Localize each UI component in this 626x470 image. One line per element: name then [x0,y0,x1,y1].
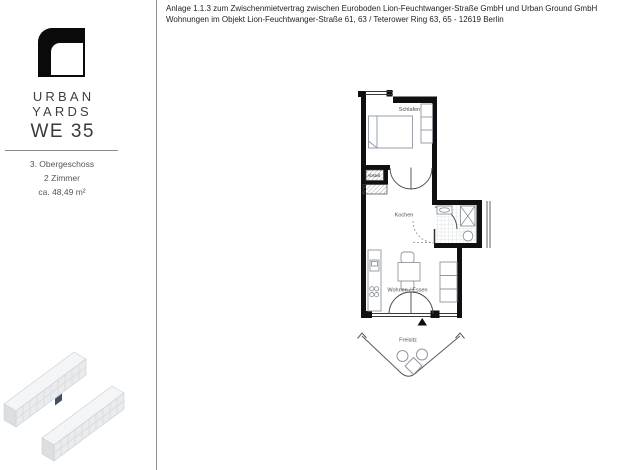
dining-chair [401,252,414,263]
terrace-chair [417,349,428,360]
terrace-label: Freisitz [399,338,417,344]
sofa [440,262,457,302]
site-model [0,345,135,470]
brand-name: URBAN YARDS [0,89,124,119]
document-page: { "document": { "header_line1": "Anlage … [0,0,626,470]
storage-label: Abstell. [368,173,382,178]
unit-details: 3. Obergeschoss 2 Zimmer ca. 48,49 m² [0,157,124,199]
living-label: Wohnen / Essen [387,288,427,294]
entrance-arrow-icon [418,318,428,326]
divider-rule [5,150,118,151]
terrace-chair [397,351,408,362]
header-line-1: Anlage 1.1.3 zum Zwischenmietvertrag zwi… [166,3,622,14]
kitchen-label: Kochen [395,213,414,219]
floor-plan: Schlafen Abstell. Kochen Wohnen / Essen … [330,80,495,385]
hall-closet [363,185,387,195]
unit-number: WE 35 [0,121,124,143]
dining-table [398,263,420,282]
unit-area: ca. 48,49 m² [0,185,124,199]
unit-rooms: 2 Zimmer [0,171,124,185]
kitchen-counter [368,250,381,311]
urban-yards-logo-icon [38,28,85,77]
terrace-table [405,358,422,375]
logo-inner-shape [51,43,83,75]
document-header: Anlage 1.1.3 zum Zwischenmietvertrag zwi… [166,3,622,25]
wardrobe [421,104,433,143]
header-line-2: Wohnungen im Objekt Lion-Feuchtwanger-St… [166,14,622,25]
toilet [463,231,473,241]
cooktop [370,287,374,291]
bed [369,116,413,148]
sidebar-divider-line [156,0,157,470]
unit-floor: 3. Obergeschoss [0,157,124,171]
bedroom-label: Schlafen [399,107,420,113]
